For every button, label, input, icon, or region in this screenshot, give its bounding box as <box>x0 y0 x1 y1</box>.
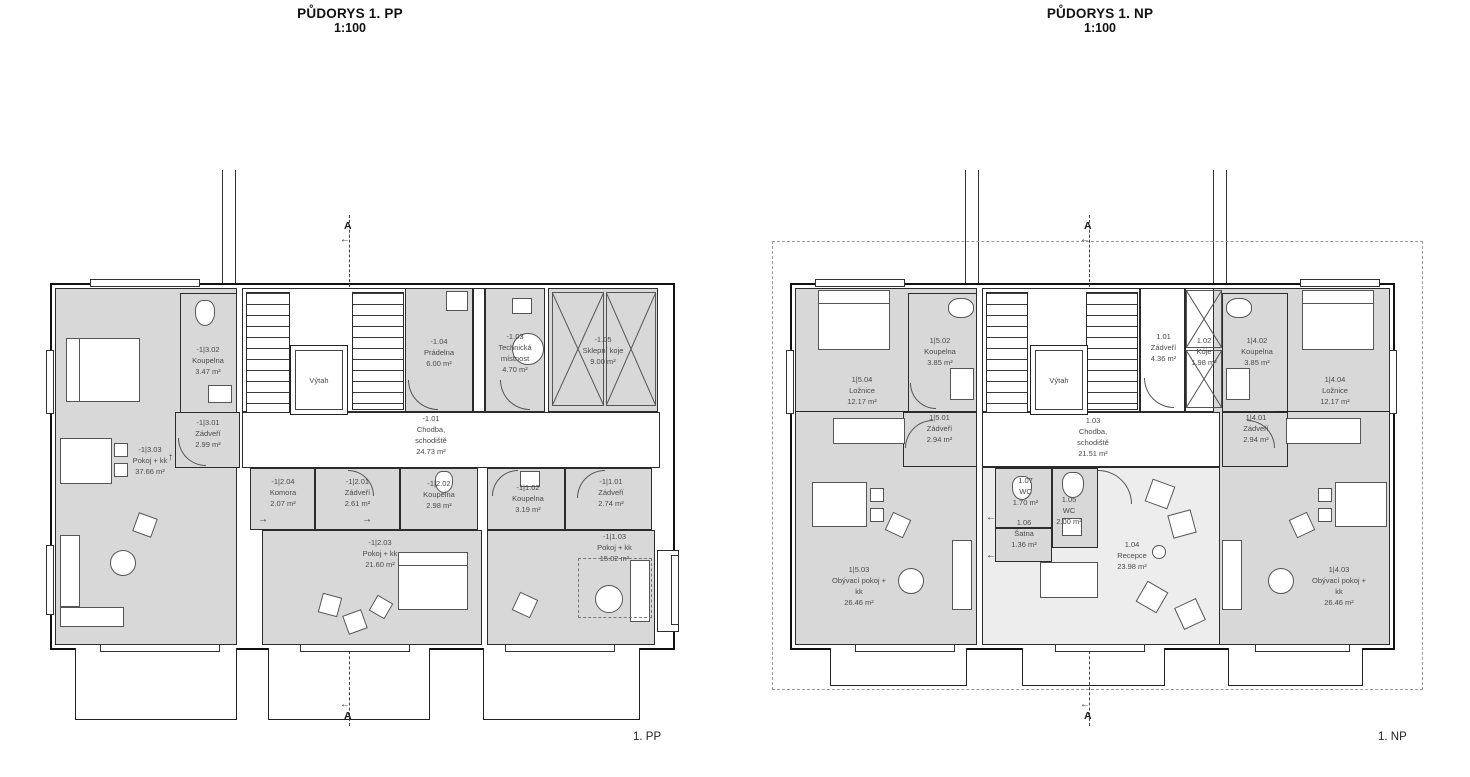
pp-elevator: Výtah <box>290 345 348 415</box>
pp-stairs-flight-right <box>352 292 404 410</box>
room-name: Technická místnost <box>489 343 541 365</box>
kitchen-counter <box>1286 418 1361 444</box>
room-name: Zádveří <box>1222 424 1290 435</box>
room-id: -1|3.03 <box>105 445 195 456</box>
room-id: -1|2.01 <box>320 477 395 488</box>
furniture-bed <box>1302 290 1374 350</box>
window <box>855 644 955 652</box>
furniture-sofa <box>952 540 972 610</box>
room-area: 1.98 m² <box>1180 358 1228 369</box>
window <box>505 644 615 652</box>
room-label-np-4-03: 1|4.03Obývací pokoj + kk26.46 m² <box>1310 565 1368 609</box>
room-label-pp-1-03: -1.03Technická místnost4.70 m² <box>489 332 541 376</box>
pp-section-marker-top: A <box>344 220 352 232</box>
room-area: 23.98 m² <box>1098 562 1166 573</box>
room-area: 21.60 m² <box>335 560 425 571</box>
np-section-marker-top: A <box>1084 220 1092 232</box>
room-name: Komora <box>252 488 314 499</box>
room-id: 1|5.03 <box>830 565 888 576</box>
room-name: Chodba, schodiště <box>400 425 462 447</box>
window <box>46 545 54 615</box>
room-id: 1.05 <box>1038 495 1100 506</box>
room-area: 3.85 m² <box>905 358 975 369</box>
room-name: Obývací pokoj + kk <box>830 576 888 598</box>
room-name: Koupelna <box>400 490 478 501</box>
room-name: Zádveří <box>178 429 238 440</box>
room-id: 1.03 <box>1062 416 1124 427</box>
window <box>1255 644 1350 652</box>
reception-desk <box>1040 562 1098 598</box>
pp-title: PŮDORYS 1. PP 1:100 <box>250 6 450 35</box>
room-area: 21.51 m² <box>1062 449 1124 460</box>
sink-fixture <box>950 368 974 400</box>
furniture-chair <box>870 508 884 522</box>
room-label-pp-1-01: -1.01Chodba, schodiště24.73 m² <box>400 414 462 458</box>
room-area: 2.07 m² <box>252 499 314 510</box>
room-id: 1.07 <box>998 476 1053 487</box>
pp-footer-label: 1. PP <box>633 731 661 743</box>
room-label-pp-1-01b: -1|1.01Zádveří2.74 m² <box>572 477 650 510</box>
room-area: 2.98 m² <box>400 501 478 512</box>
room-label-pp-2-02: -1|2.02Koupelna2.98 m² <box>400 479 478 512</box>
furniture-table <box>812 482 867 527</box>
np-section-arrow-top-icon: ← <box>1080 234 1090 245</box>
sink-fixture <box>1226 368 1250 400</box>
room-area: 2.94 m² <box>1222 435 1290 446</box>
room-label-pp-1-04: -1.04Prádelna6.00 m² <box>405 337 473 370</box>
room-id: 1.06 <box>995 518 1053 529</box>
furniture-bed <box>66 338 140 402</box>
np-elevator-label: Výtah <box>1049 376 1068 385</box>
room-name: Pokoj + kk <box>572 543 657 554</box>
room-label-pp-2-03: -1|2.03Pokoj + kk21.60 m² <box>335 538 425 571</box>
room-area: 26.46 m² <box>830 598 888 609</box>
entry-arrow-icon: ← <box>986 512 996 523</box>
room-label-np-4-01: 1|4.01Zádveří2.94 m² <box>1222 413 1290 446</box>
pp-title-scale: 1:100 <box>250 21 450 35</box>
room-name: WC <box>1038 506 1100 517</box>
room-area: 24.73 m² <box>400 447 462 458</box>
pp-terrace <box>75 648 237 720</box>
furniture-armchair <box>1268 568 1294 594</box>
room-id: 1|4.03 <box>1310 565 1368 576</box>
room-area: 12.17 m² <box>822 397 902 408</box>
room-area: 6.00 m² <box>405 359 473 370</box>
window <box>90 279 200 287</box>
furniture-armchair <box>898 568 924 594</box>
room-label-pp-1-03b: -1|1.03Pokoj + kk15.02 m² <box>572 532 657 565</box>
room-name: Koupelna <box>905 347 975 358</box>
room-name: Koupelna <box>1222 347 1292 358</box>
furniture-sofa <box>60 607 124 627</box>
pp-section-marker-bottom: A <box>344 710 352 722</box>
room-label-np-1-04: 1.04Recepce23.98 m² <box>1098 540 1166 573</box>
furniture-chair <box>1318 488 1332 502</box>
room-name: Pokoj + kk <box>105 456 195 467</box>
appliance-fixture <box>512 298 532 314</box>
room-label-pp-2-04: -1|2.04Komora2.07 m² <box>252 477 314 510</box>
window <box>46 350 54 414</box>
room-id: -1|2.02 <box>400 479 478 490</box>
furniture-chair <box>1318 508 1332 522</box>
furniture-armchair <box>110 550 136 576</box>
room-id: -1.04 <box>405 337 473 348</box>
toilet-fixture <box>195 300 215 326</box>
window <box>786 350 794 414</box>
entry-arrow-icon: ← <box>986 550 996 561</box>
pp-title-heading: PŮDORYS 1. PP <box>250 6 450 21</box>
entry-arrow-icon: ↑ <box>168 452 173 463</box>
room-name: Sklepní koje <box>580 346 626 357</box>
room-id: -1|1.01 <box>572 477 650 488</box>
furniture-chair <box>870 488 884 502</box>
window <box>815 279 905 287</box>
room-id: 1|4.02 <box>1222 336 1292 347</box>
room-name: Chodba, schodiště <box>1062 427 1124 449</box>
window <box>300 644 410 652</box>
furniture-sofa <box>60 535 80 607</box>
toilet-fixture <box>948 298 974 318</box>
room-id: -1.01 <box>400 414 462 425</box>
room-id: 1|5.01 <box>902 413 977 424</box>
room-label-pp-1-05: -1.05Sklepní koje9.00 m² <box>580 335 626 368</box>
room-label-np-5-02: 1|5.02Koupelna3.85 m² <box>905 336 975 369</box>
room-area: 15.02 m² <box>572 554 657 565</box>
furniture-table <box>1335 482 1387 527</box>
window <box>1300 279 1380 287</box>
np-section-arrow-bottom-icon: ← <box>1080 699 1090 710</box>
room-area: 2.94 m² <box>902 435 977 446</box>
np-apartment-5-partition <box>795 411 908 412</box>
room-label-np-4-02: 1|4.02Koupelna3.85 m² <box>1222 336 1292 369</box>
np-apartment-4-partition <box>1277 411 1390 412</box>
room-name: Ložnice <box>822 386 902 397</box>
room-area: 37.66 m² <box>105 467 195 478</box>
room-name: Zádveří <box>320 488 395 499</box>
room-name: Ložnice <box>1295 386 1375 397</box>
room-name: Prádelna <box>405 348 473 359</box>
room-id: -1.03 <box>489 332 541 343</box>
pp-chimney <box>222 170 236 283</box>
room-name: Obývací pokoj + kk <box>1310 576 1368 598</box>
room-label-np-1-02: 1.02Kóje1.98 m² <box>1180 336 1228 369</box>
toilet-fixture <box>1226 298 1252 318</box>
room-name: Koupelna <box>178 356 238 367</box>
bed-pillow-line <box>79 339 80 401</box>
room-id: -1.05 <box>580 335 626 346</box>
room-area: 1.36 m² <box>995 540 1053 551</box>
room-label-np-5-01: 1|5.01Zádveří2.94 m² <box>902 413 977 446</box>
dashed-reserved-area <box>578 558 652 618</box>
room-area: 26.46 m² <box>1310 598 1368 609</box>
room-id: -1|2.04 <box>252 477 314 488</box>
room-id: -1|3.02 <box>178 345 238 356</box>
room-label-pp-3-02: -1|3.02Koupelna3.47 m² <box>178 345 238 378</box>
entry-arrow-icon: → <box>362 514 372 525</box>
room-label-np-1-03: 1.03Chodba, schodiště21.51 m² <box>1062 416 1124 460</box>
room-label-np-5-04: 1|5.04Ložnice12.17 m² <box>822 375 902 408</box>
room-id: 1|5.02 <box>905 336 975 347</box>
bed-pillow-line <box>1303 303 1373 304</box>
room-id: 1|4.01 <box>1222 413 1290 424</box>
pp-section-arrow-bottom-icon: ← <box>340 699 350 710</box>
room-id: -1|1.02 <box>492 483 564 494</box>
furniture-sofa <box>1222 540 1242 610</box>
room-id: -1|1.03 <box>572 532 657 543</box>
window <box>100 644 220 652</box>
room-name: Pokoj + kk <box>335 549 425 560</box>
kitchen-counter <box>833 418 905 444</box>
pp-service-lobby <box>473 288 485 412</box>
room-area: 2.74 m² <box>572 499 650 510</box>
room-area: 3.47 m² <box>178 367 238 378</box>
pp-section-arrow-top-icon: ← <box>340 234 350 245</box>
np-footer-label: 1. NP <box>1378 731 1407 743</box>
pp-elevator-label: Výtah <box>309 376 328 385</box>
room-area: 3.19 m² <box>492 505 564 516</box>
room-label-np-5-03: 1|5.03Obývací pokoj + kk26.46 m² <box>830 565 888 609</box>
room-label-pp-1-02: -1|1.02Koupelna3.19 m² <box>492 483 564 516</box>
room-label-np-4-04: 1|4.04Ložnice12.17 m² <box>1295 375 1375 408</box>
furniture-bed <box>818 290 890 350</box>
sink-fixture <box>208 385 232 403</box>
room-area: 12.17 m² <box>1295 397 1375 408</box>
room-id: 1.04 <box>1098 540 1166 551</box>
room-name: Zádveří <box>902 424 977 435</box>
bed-pillow-line <box>819 303 889 304</box>
room-id: 1|5.04 <box>822 375 902 386</box>
room-name: Zádveří <box>572 488 650 499</box>
room-name: Koupelna <box>492 494 564 505</box>
room-area: 4.70 m² <box>489 365 541 376</box>
room-area: 2.61 m² <box>320 499 395 510</box>
room-label-pp-3-03: -1|3.03Pokoj + kk37.66 m² <box>105 445 195 478</box>
room-label-np-1-06: 1.06Šatna1.36 m² <box>995 518 1053 551</box>
pp-terrace <box>483 648 640 720</box>
np-title: PŮDORYS 1. NP 1:100 <box>1000 6 1200 35</box>
room-id: -1|2.03 <box>335 538 425 549</box>
np-title-heading: PŮDORYS 1. NP <box>1000 6 1200 21</box>
window <box>1389 350 1397 414</box>
room-name: Recepce <box>1098 551 1166 562</box>
room-id: 1|4.04 <box>1295 375 1375 386</box>
room-name: Kóje <box>1180 347 1228 358</box>
floor-plan-sheet: PŮDORYS 1. PP 1:100 PŮDORYS 1. NP 1:100 … <box>0 0 1470 777</box>
np-title-scale: 1:100 <box>1000 21 1200 35</box>
room-label-pp-2-01: -1|2.01Zádveří2.61 m² <box>320 477 395 510</box>
room-id: -1|3.01 <box>178 418 238 429</box>
np-elevator: Výtah <box>1030 345 1088 415</box>
room-area: 3.85 m² <box>1222 358 1292 369</box>
np-section-marker-bottom: A <box>1084 710 1092 722</box>
window <box>671 555 679 625</box>
window <box>1055 644 1145 652</box>
washer-fixture <box>446 291 468 311</box>
entry-arrow-icon: → <box>258 514 268 525</box>
room-id: 1.02 <box>1180 336 1228 347</box>
room-area: 9.00 m² <box>580 357 626 368</box>
room-name: Šatna <box>995 529 1053 540</box>
